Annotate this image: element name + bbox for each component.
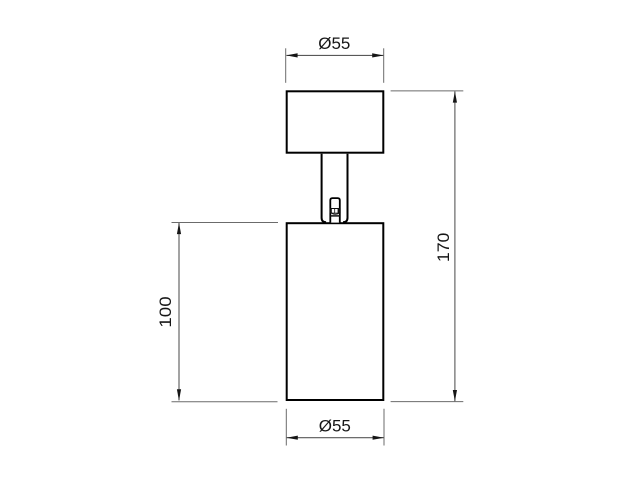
- svg-text:170: 170: [433, 233, 453, 262]
- svg-text:Ø55: Ø55: [318, 34, 350, 53]
- svg-text:100: 100: [156, 296, 175, 327]
- svg-text:Ø55: Ø55: [319, 417, 351, 436]
